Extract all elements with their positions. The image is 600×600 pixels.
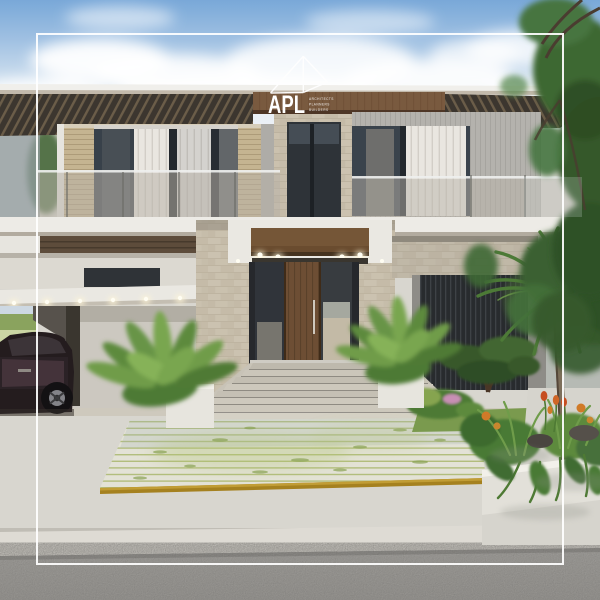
svg-text:BUILDERS: BUILDERS xyxy=(309,108,329,112)
svg-text:ARCHITECTS: ARCHITECTS xyxy=(309,97,334,101)
svg-text:APL: APL xyxy=(268,91,305,119)
svg-text:PLANNERS: PLANNERS xyxy=(309,103,330,107)
